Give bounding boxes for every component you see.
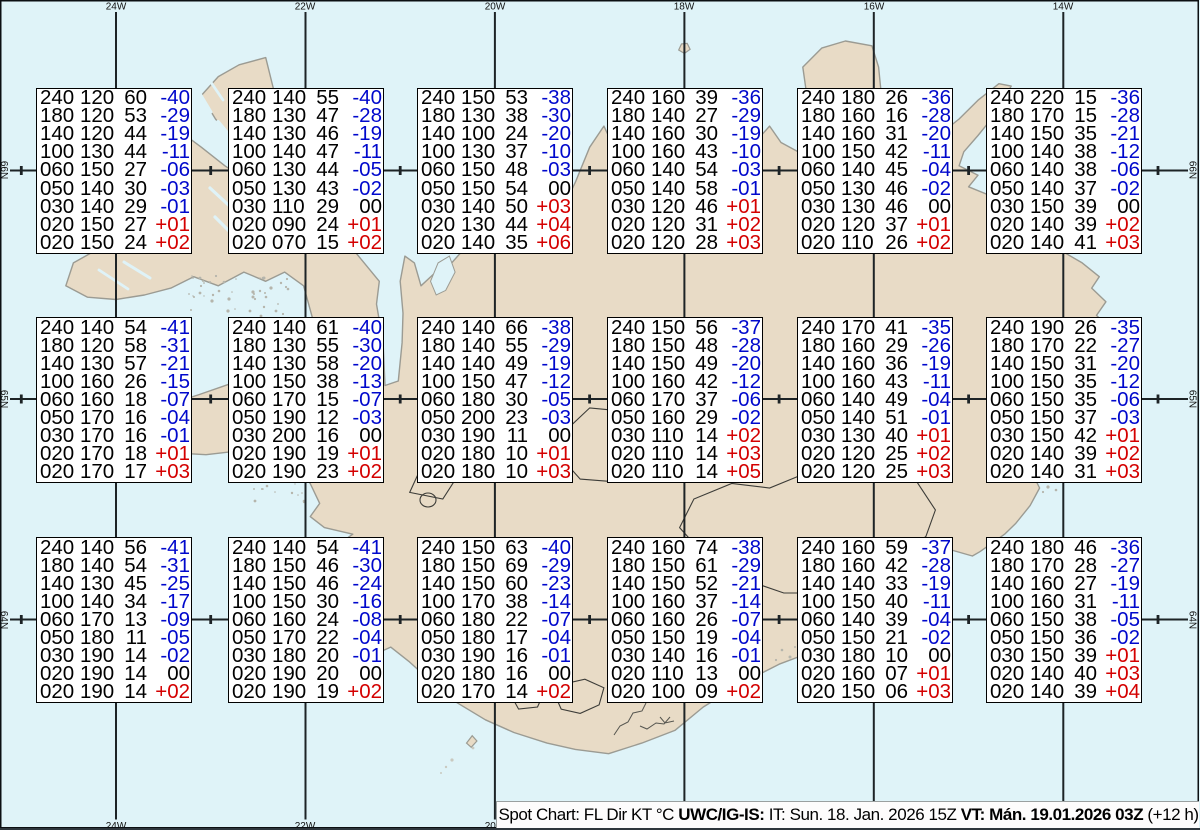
svg-text:20W: 20W	[485, 2, 506, 13]
svg-text:64N: 64N	[1187, 611, 1198, 629]
svg-text:65N: 65N	[1187, 390, 1198, 408]
svg-text:14W: 14W	[1053, 2, 1074, 13]
svg-text:24W: 24W	[106, 2, 127, 13]
svg-text:22W: 22W	[295, 2, 316, 13]
svg-text:16W: 16W	[864, 2, 885, 13]
svg-text:18W: 18W	[674, 2, 695, 13]
svg-text:66N: 66N	[1187, 161, 1198, 179]
